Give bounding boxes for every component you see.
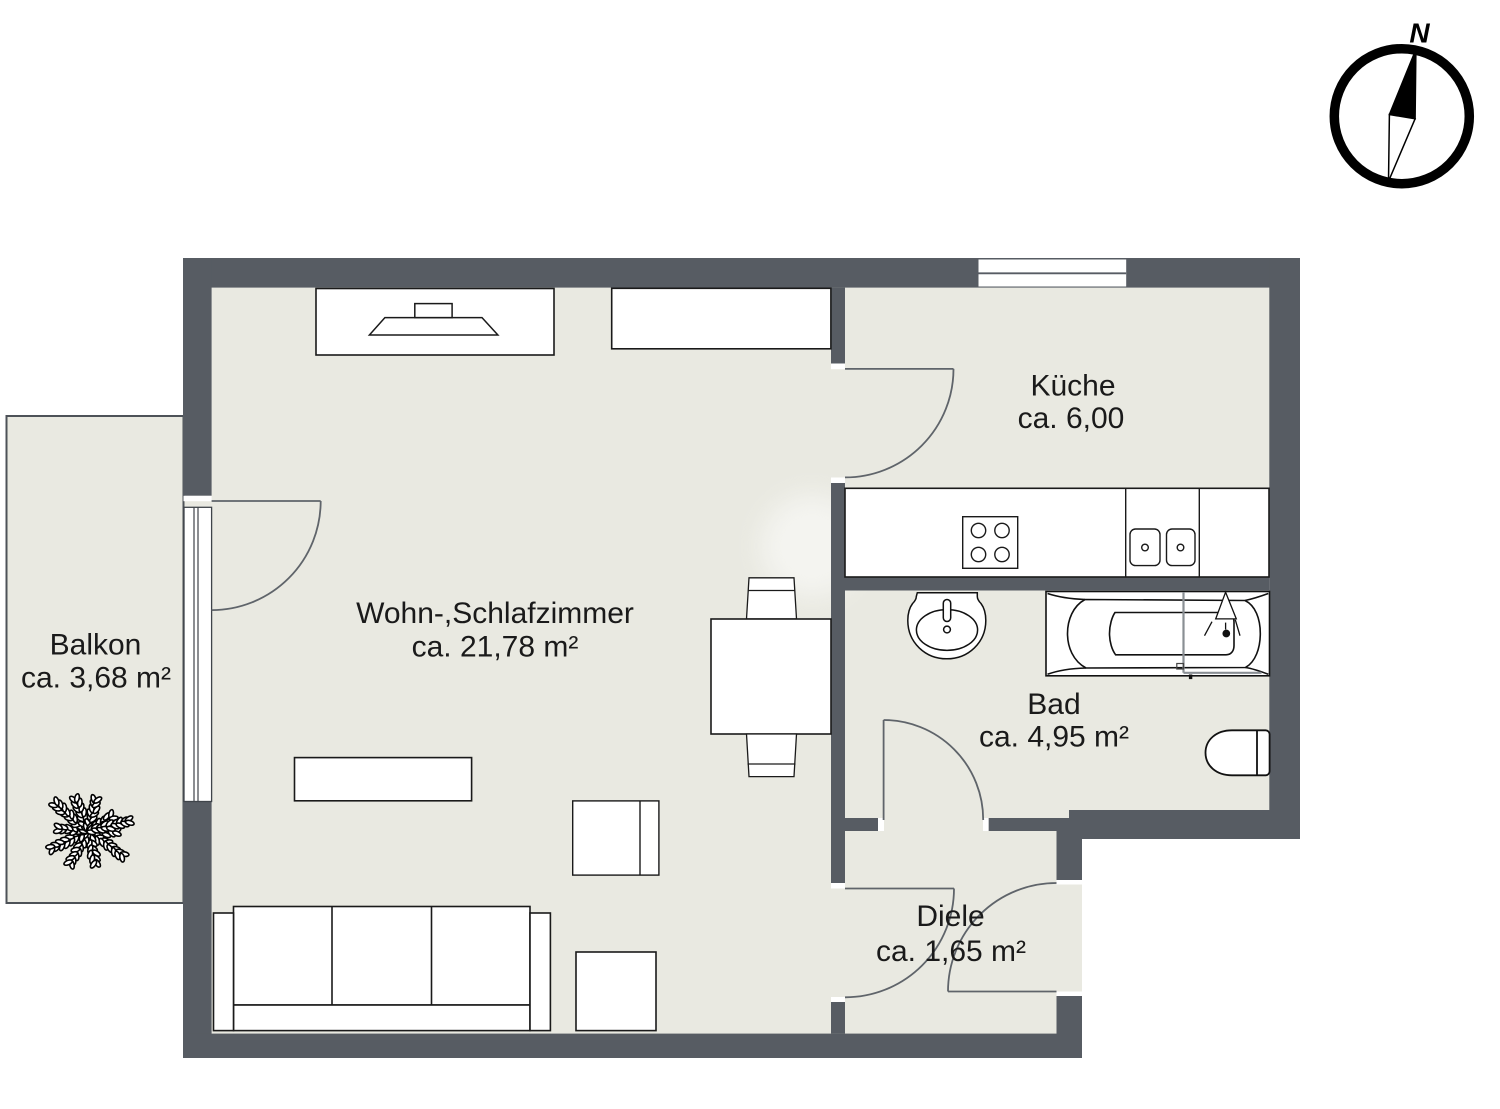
svg-text:ca. 3,68 m²: ca. 3,68 m² — [21, 661, 171, 694]
svg-text:N: N — [1409, 18, 1430, 49]
svg-text:ca. 1,65 m²: ca. 1,65 m² — [876, 935, 1026, 968]
svg-text:ca. 21,78 m²: ca. 21,78 m² — [412, 631, 579, 664]
svg-text:Balkon: Balkon — [50, 628, 142, 661]
svg-text:ca. 6,00: ca. 6,00 — [1018, 402, 1125, 435]
svg-text:Wohn-,Schlafzimmer: Wohn-,Schlafzimmer — [356, 597, 634, 630]
svg-text:Küche: Küche — [1030, 370, 1115, 403]
svg-text:Diele: Diele — [916, 900, 984, 933]
svg-text:ca. 4,95 m²: ca. 4,95 m² — [979, 721, 1129, 754]
svg-text:Bad: Bad — [1027, 688, 1080, 721]
